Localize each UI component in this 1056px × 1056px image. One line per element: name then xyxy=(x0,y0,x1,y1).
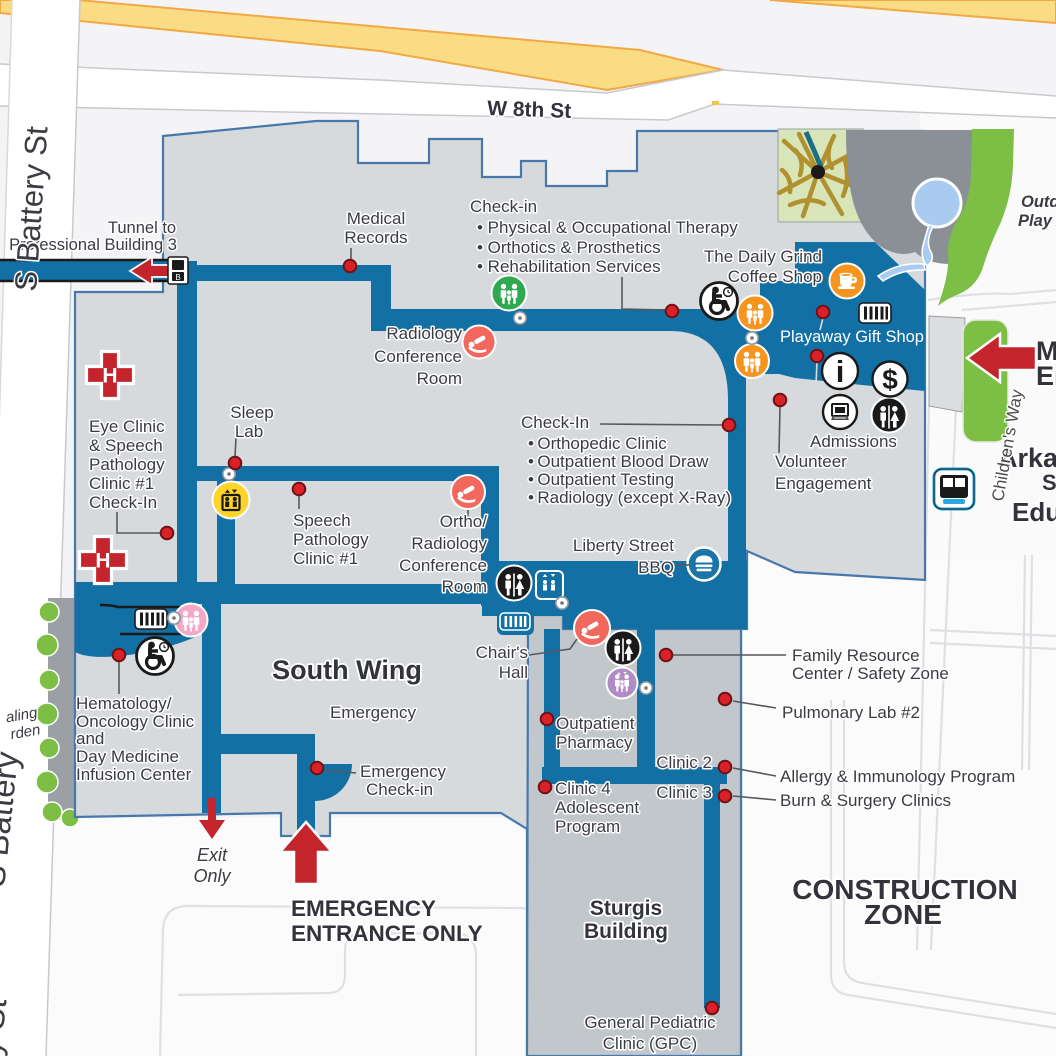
svg-text:Clinic 3: Clinic 3 xyxy=(656,783,712,802)
svg-text:Room: Room xyxy=(417,369,462,388)
svg-text:Play A: Play A xyxy=(1018,212,1056,230)
svg-text:Adolescent: Adolescent xyxy=(555,798,639,817)
svg-text:Emergency: Emergency xyxy=(360,762,446,781)
svg-text:Tunnel to: Tunnel to xyxy=(108,219,176,237)
svg-text:Emergency: Emergency xyxy=(330,703,416,722)
svg-text:& Speech: & Speech xyxy=(89,436,163,455)
svg-text:Volunteer: Volunteer xyxy=(775,452,847,471)
svg-text:Conference: Conference xyxy=(374,347,462,366)
svg-text:Records: Records xyxy=(344,228,407,247)
svg-text:Exit: Exit xyxy=(197,845,228,865)
svg-text:Outdo: Outdo xyxy=(1021,193,1056,211)
svg-text:Infusion Center: Infusion Center xyxy=(76,765,192,784)
svg-text:Only: Only xyxy=(193,866,231,886)
svg-text:Pathology: Pathology xyxy=(89,455,165,474)
svg-text:Playaway Gift Shop: Playaway Gift Shop xyxy=(780,328,924,346)
svg-text:B: B xyxy=(175,273,180,282)
svg-text:ZONE: ZONE xyxy=(864,899,942,930)
svg-text:Educ: Educ xyxy=(1012,497,1056,527)
svg-text:Day Medicine: Day Medicine xyxy=(76,747,179,766)
svg-text:Pulmonary Lab #2: Pulmonary Lab #2 xyxy=(782,703,920,722)
svg-text:South Wing: South Wing xyxy=(272,655,422,685)
svg-text:Check-in: Check-in xyxy=(366,780,433,799)
svg-text:• Radiology (except X-Ray): • Radiology (except X-Ray) xyxy=(528,488,731,507)
svg-text:Building: Building xyxy=(584,920,668,943)
svg-text:Allergy & Immunology Program: Allergy & Immunology Program xyxy=(780,767,1015,786)
svg-text:Speech: Speech xyxy=(293,511,351,530)
svg-text:Radiology: Radiology xyxy=(386,324,462,343)
svg-text:Admissions: Admissions xyxy=(810,432,897,451)
svg-text:S: S xyxy=(1042,470,1056,495)
svg-text:• Orthotics & Prosthetics: • Orthotics & Prosthetics xyxy=(477,238,661,257)
svg-text:• Rehabilitation Services: • Rehabilitation Services xyxy=(477,257,661,276)
svg-text:Engagement: Engagement xyxy=(775,474,872,493)
svg-text:Check-In: Check-In xyxy=(521,413,589,432)
svg-text:EMERGENCY: EMERGENCY xyxy=(291,896,436,921)
svg-text:• Orthopedic Clinic: • Orthopedic Clinic xyxy=(528,434,667,453)
svg-text:Family Resource: Family Resource xyxy=(792,646,920,665)
svg-text:Chair's: Chair's xyxy=(476,643,528,662)
svg-text:General Pediatric: General Pediatric xyxy=(584,1013,716,1032)
svg-text:Eye Clinic: Eye Clinic xyxy=(89,417,165,436)
svg-text:i: i xyxy=(836,354,845,389)
svg-text:Sturgis: Sturgis xyxy=(590,897,662,920)
svg-text:Center / Safety Zone: Center / Safety Zone xyxy=(792,664,949,683)
svg-text:Check-in: Check-in xyxy=(470,197,537,216)
svg-text:Burn & Surgery Clinics: Burn & Surgery Clinics xyxy=(780,791,951,810)
svg-text:Room: Room xyxy=(442,577,487,596)
svg-text:• Outpatient Blood Draw: • Outpatient Blood Draw xyxy=(528,452,709,471)
svg-text:• Outpatient Testing: • Outpatient Testing xyxy=(528,470,674,489)
svg-text:Clinic #1: Clinic #1 xyxy=(89,474,154,493)
svg-text:Radiology: Radiology xyxy=(411,534,487,553)
svg-text:Ortho/: Ortho/ xyxy=(440,512,488,531)
svg-text:Outpatient: Outpatient xyxy=(556,714,635,733)
svg-text:ENTRANCE ONLY: ENTRANCE ONLY xyxy=(291,921,483,946)
svg-text:Clinic 2: Clinic 2 xyxy=(656,753,712,772)
svg-text:The Daily Grind: The Daily Grind xyxy=(704,247,822,266)
svg-text:Lab: Lab xyxy=(235,422,263,441)
svg-text:and: and xyxy=(76,729,104,748)
svg-text:Pharmacy: Pharmacy xyxy=(556,733,633,752)
svg-text:Sleep: Sleep xyxy=(230,403,273,422)
svg-text:W 8th St: W 8th St xyxy=(487,97,572,123)
svg-text:Clinic 4: Clinic 4 xyxy=(555,779,611,798)
svg-text:Coffee Shop: Coffee Shop xyxy=(728,267,822,286)
svg-text:$: $ xyxy=(882,364,898,395)
svg-text:Medical: Medical xyxy=(347,209,406,228)
svg-text:• Physical & Occupational T: • Physical & Occupational Therapy xyxy=(477,218,738,237)
svg-text:Pathology: Pathology xyxy=(293,530,369,549)
svg-text:Entr: Entr xyxy=(1036,361,1056,391)
svg-text:Clinic (GPC): Clinic (GPC) xyxy=(603,1034,697,1053)
svg-text:Check-In: Check-In xyxy=(89,493,157,512)
svg-text:Program: Program xyxy=(555,817,620,836)
svg-text:Clinic #1: Clinic #1 xyxy=(293,549,358,568)
svg-text:BBQ: BBQ xyxy=(638,558,674,577)
svg-text:Liberty Street: Liberty Street xyxy=(573,536,674,555)
svg-text:Conference: Conference xyxy=(399,556,487,575)
svg-text:Hematology/: Hematology/ xyxy=(76,694,172,713)
svg-text:Hall: Hall xyxy=(499,663,528,682)
